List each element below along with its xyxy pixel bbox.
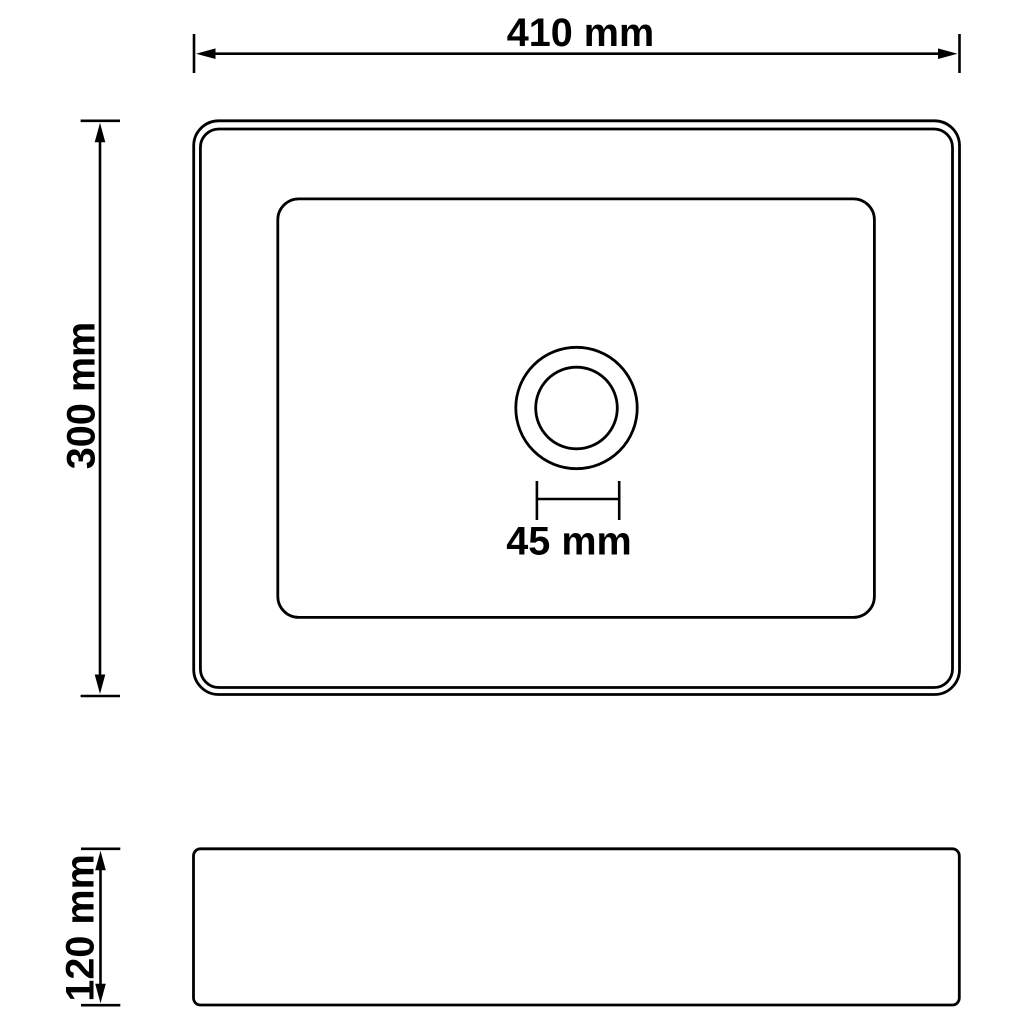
svg-text:120 mm: 120 mm xyxy=(59,854,103,1001)
svg-text:45 mm: 45 mm xyxy=(506,520,631,564)
svg-text:410 mm: 410 mm xyxy=(507,11,654,55)
svg-text:300 mm: 300 mm xyxy=(60,322,104,469)
